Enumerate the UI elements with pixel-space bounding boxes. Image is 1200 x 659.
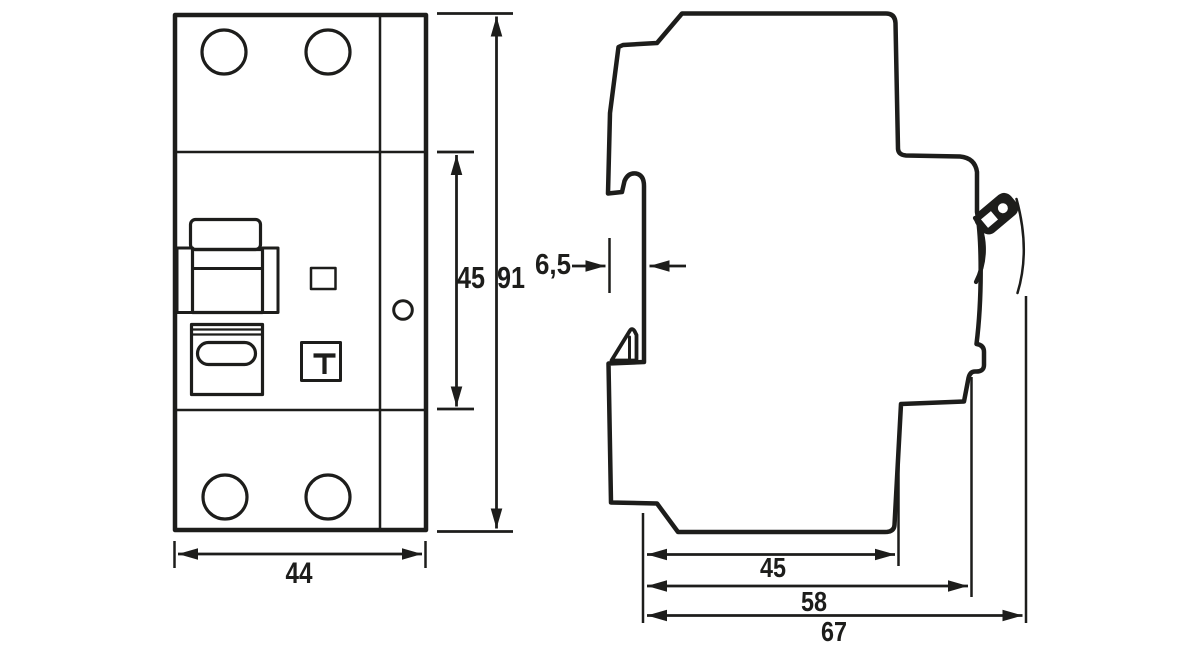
- toggle-ear-left: [177, 248, 193, 313]
- lever-swing-arc: [1017, 199, 1024, 293]
- terminal-hole-bottom-left: [203, 475, 247, 519]
- front-view: [175, 15, 426, 530]
- label-window-pill: [198, 343, 256, 365]
- terminal-hole-bottom-right: [306, 475, 350, 519]
- toggle-ear-right: [263, 248, 279, 313]
- dim-label-front-44: 44: [286, 557, 313, 590]
- side-view: [608, 14, 1024, 533]
- dim-label-front-91: 91: [497, 260, 525, 295]
- technical-drawing: 45 91 44 6,5 45 58 67: [0, 0, 1200, 659]
- side-panel-hole: [394, 301, 413, 320]
- status-indicator-window: [311, 268, 336, 289]
- dim-label-front-45: 45: [457, 260, 485, 295]
- test-button-t-icon: [314, 356, 336, 375]
- drawing-canvas: 45 91 44 6,5 45 58 67: [0, 0, 1200, 659]
- dim-label-side-6-5: 6,5: [535, 249, 571, 281]
- dim-label-side-45: 45: [760, 552, 786, 583]
- dim-label-side-58: 58: [801, 586, 827, 617]
- dim-label-side-67: 67: [821, 616, 847, 647]
- front-housing-outline: [175, 15, 426, 530]
- terminal-hole-top-right: [306, 30, 350, 74]
- side-profile-outline: [608, 14, 984, 533]
- terminal-hole-top-left: [202, 30, 246, 74]
- test-button: [302, 343, 341, 381]
- rail-clip-triangle: [612, 329, 637, 360]
- toggle-handle: [191, 220, 261, 250]
- toggle-body: [193, 250, 263, 313]
